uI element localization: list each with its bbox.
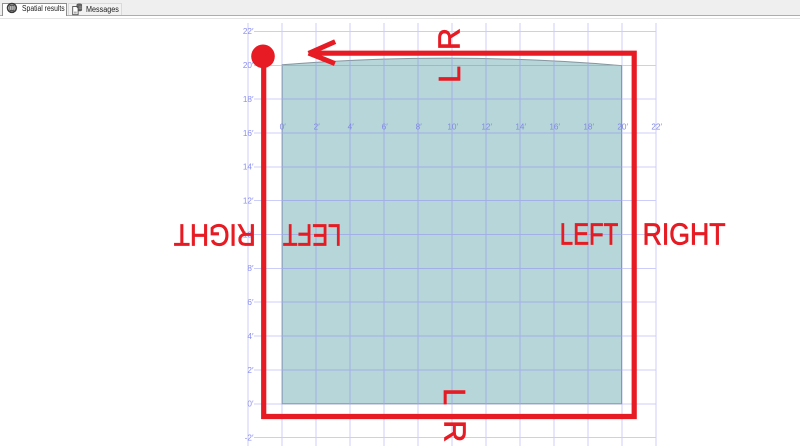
svg-text:18′: 18′ (243, 95, 254, 104)
svg-text:R: R (438, 420, 472, 442)
svg-text:2′: 2′ (314, 122, 321, 131)
svg-text:20′: 20′ (243, 61, 254, 70)
svg-text:20′: 20′ (617, 122, 628, 131)
svg-text:LEFT: LEFT (283, 218, 342, 252)
svg-text:6′: 6′ (382, 122, 389, 131)
svg-text:16′: 16′ (549, 122, 560, 131)
svg-text:LEFT: LEFT (560, 218, 619, 252)
svg-text:22′: 22′ (243, 27, 254, 36)
svg-text:R: R (433, 28, 467, 50)
svg-text:2′: 2′ (247, 366, 254, 375)
svg-text:L: L (433, 66, 467, 83)
svg-text:16′: 16′ (243, 129, 254, 138)
svg-text:22′: 22′ (651, 122, 662, 131)
svg-text:18′: 18′ (583, 122, 594, 131)
svg-text:8′: 8′ (247, 264, 254, 273)
svg-text:0′: 0′ (280, 122, 287, 131)
svg-text:-2′: -2′ (245, 434, 254, 443)
svg-text:RIGHT: RIGHT (174, 218, 256, 252)
svg-text:4′: 4′ (247, 332, 254, 341)
svg-text:8′: 8′ (416, 122, 423, 131)
svg-text:6′: 6′ (247, 298, 254, 307)
svg-text:L: L (437, 388, 471, 405)
svg-text:0′: 0′ (247, 400, 254, 409)
svg-text:4′: 4′ (348, 122, 355, 131)
svg-text:12′: 12′ (481, 122, 492, 131)
svg-text:10′: 10′ (447, 122, 458, 131)
svg-text:14′: 14′ (243, 163, 254, 172)
svg-text:12′: 12′ (243, 197, 254, 206)
svg-text:RIGHT: RIGHT (643, 218, 726, 252)
svg-text:14′: 14′ (515, 122, 526, 131)
